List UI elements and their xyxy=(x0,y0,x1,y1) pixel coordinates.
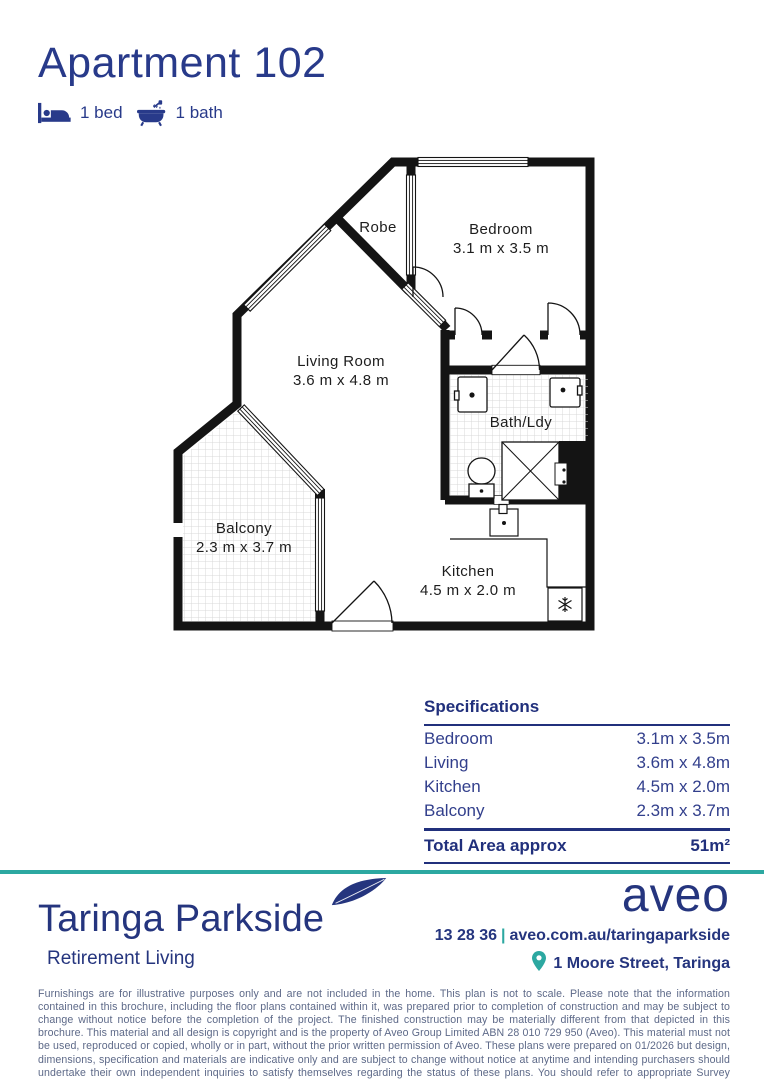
bed-icon xyxy=(38,101,71,125)
contact-line: 13 28 36|aveo.com.au/taringaparkside xyxy=(435,927,730,945)
spec-label: Kitchen xyxy=(424,778,481,795)
floorplan-svg: Robe Bedroom 3.1 m x 3.5 m Living Room 3… xyxy=(163,148,603,648)
room-dims-bedroom: 3.1 m x 3.5 m xyxy=(453,240,549,257)
spec-label: Balcony xyxy=(424,802,484,819)
room-label-living: Living Room xyxy=(297,353,385,370)
dryer-icon xyxy=(550,378,580,407)
spec-row: Balcony 2.3m x 3.7m xyxy=(424,799,730,823)
specifications-title: Specifications xyxy=(424,697,730,724)
room-label-robe: Robe xyxy=(359,219,396,236)
feather-icon xyxy=(330,877,388,912)
website-url: aveo.com.au/taringaparkside xyxy=(509,927,730,944)
brochure-page: Apartment 102 1 bed xyxy=(0,0,764,1080)
spec-value: 2.3m x 3.7m xyxy=(636,802,730,819)
entry-threshold xyxy=(332,621,393,631)
window-top xyxy=(418,158,528,167)
spec-label: Bedroom xyxy=(424,730,493,747)
separator: | xyxy=(497,927,509,944)
spec-value: 4.5m x 2.0m xyxy=(636,778,730,795)
feature-bed-label: 1 bed xyxy=(80,103,123,123)
spec-row: Kitchen 4.5m x 2.0m xyxy=(424,774,730,798)
window-balcony-side xyxy=(316,498,325,611)
brand-name: Taringa Parkside xyxy=(38,900,324,938)
spec-row: Living 3.6m x 4.8m xyxy=(424,750,730,774)
phone-number: 13 28 36 xyxy=(435,927,497,944)
feature-bath-label: 1 bath xyxy=(176,103,223,123)
specifications-panel: Specifications Bedroom 3.1m x 3.5m Livin… xyxy=(424,697,730,864)
spec-row: Bedroom 3.1m x 3.5m xyxy=(424,726,730,750)
page-title: Apartment 102 xyxy=(38,42,327,85)
brand-tagline: Retirement Living xyxy=(47,948,195,970)
location-pin-icon xyxy=(532,951,546,976)
legal-disclaimer: Furnishings are for illustrative purpose… xyxy=(38,988,730,1080)
room-label-bath: Bath/Ldy xyxy=(490,414,553,431)
toilet-icon xyxy=(468,458,495,484)
room-dims-balcony: 2.3 m x 3.7 m xyxy=(196,539,292,556)
spec-total-value: 51m² xyxy=(690,836,730,856)
address-line: 1 Moore Street, Taringa xyxy=(435,951,730,976)
room-label-bedroom: Bedroom xyxy=(469,221,533,238)
spec-label: Living xyxy=(424,754,468,771)
room-label-kitchen: Kitchen xyxy=(442,563,495,580)
aveo-logo: aveo xyxy=(435,872,730,920)
window-bedroom-west xyxy=(407,175,416,275)
room-dims-kitchen: 4.5 m x 2.0 m xyxy=(420,582,516,599)
bath-icon xyxy=(137,99,167,127)
feature-bath: 1 bath xyxy=(137,99,223,127)
spec-value: 3.1m x 3.5m xyxy=(636,730,730,747)
footer-contact-block: aveo 13 28 36|aveo.com.au/taringaparksid… xyxy=(435,872,730,976)
feature-bed: 1 bed xyxy=(38,101,123,125)
room-label-balcony: Balcony xyxy=(216,520,272,537)
spec-total-label: Total Area approx xyxy=(424,836,567,856)
feature-list: 1 bed 1 bath xyxy=(38,99,223,127)
room-dims-living: 3.6 m x 4.8 m xyxy=(293,372,389,389)
spec-total-row: Total Area approx 51m² xyxy=(424,828,730,864)
spec-value: 3.6m x 4.8m xyxy=(636,754,730,771)
street-address: 1 Moore Street, Taringa xyxy=(553,955,730,973)
